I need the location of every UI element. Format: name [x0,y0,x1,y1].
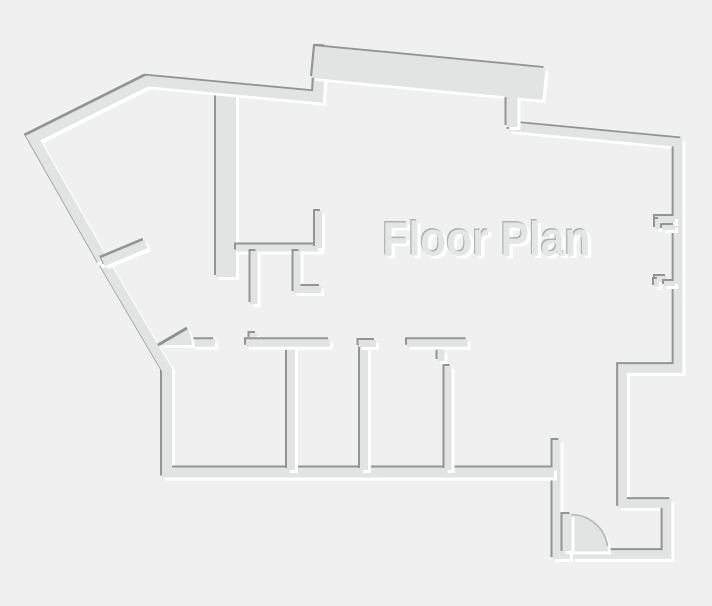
svg-text:Floor Plan: Floor Plan [383,214,591,267]
